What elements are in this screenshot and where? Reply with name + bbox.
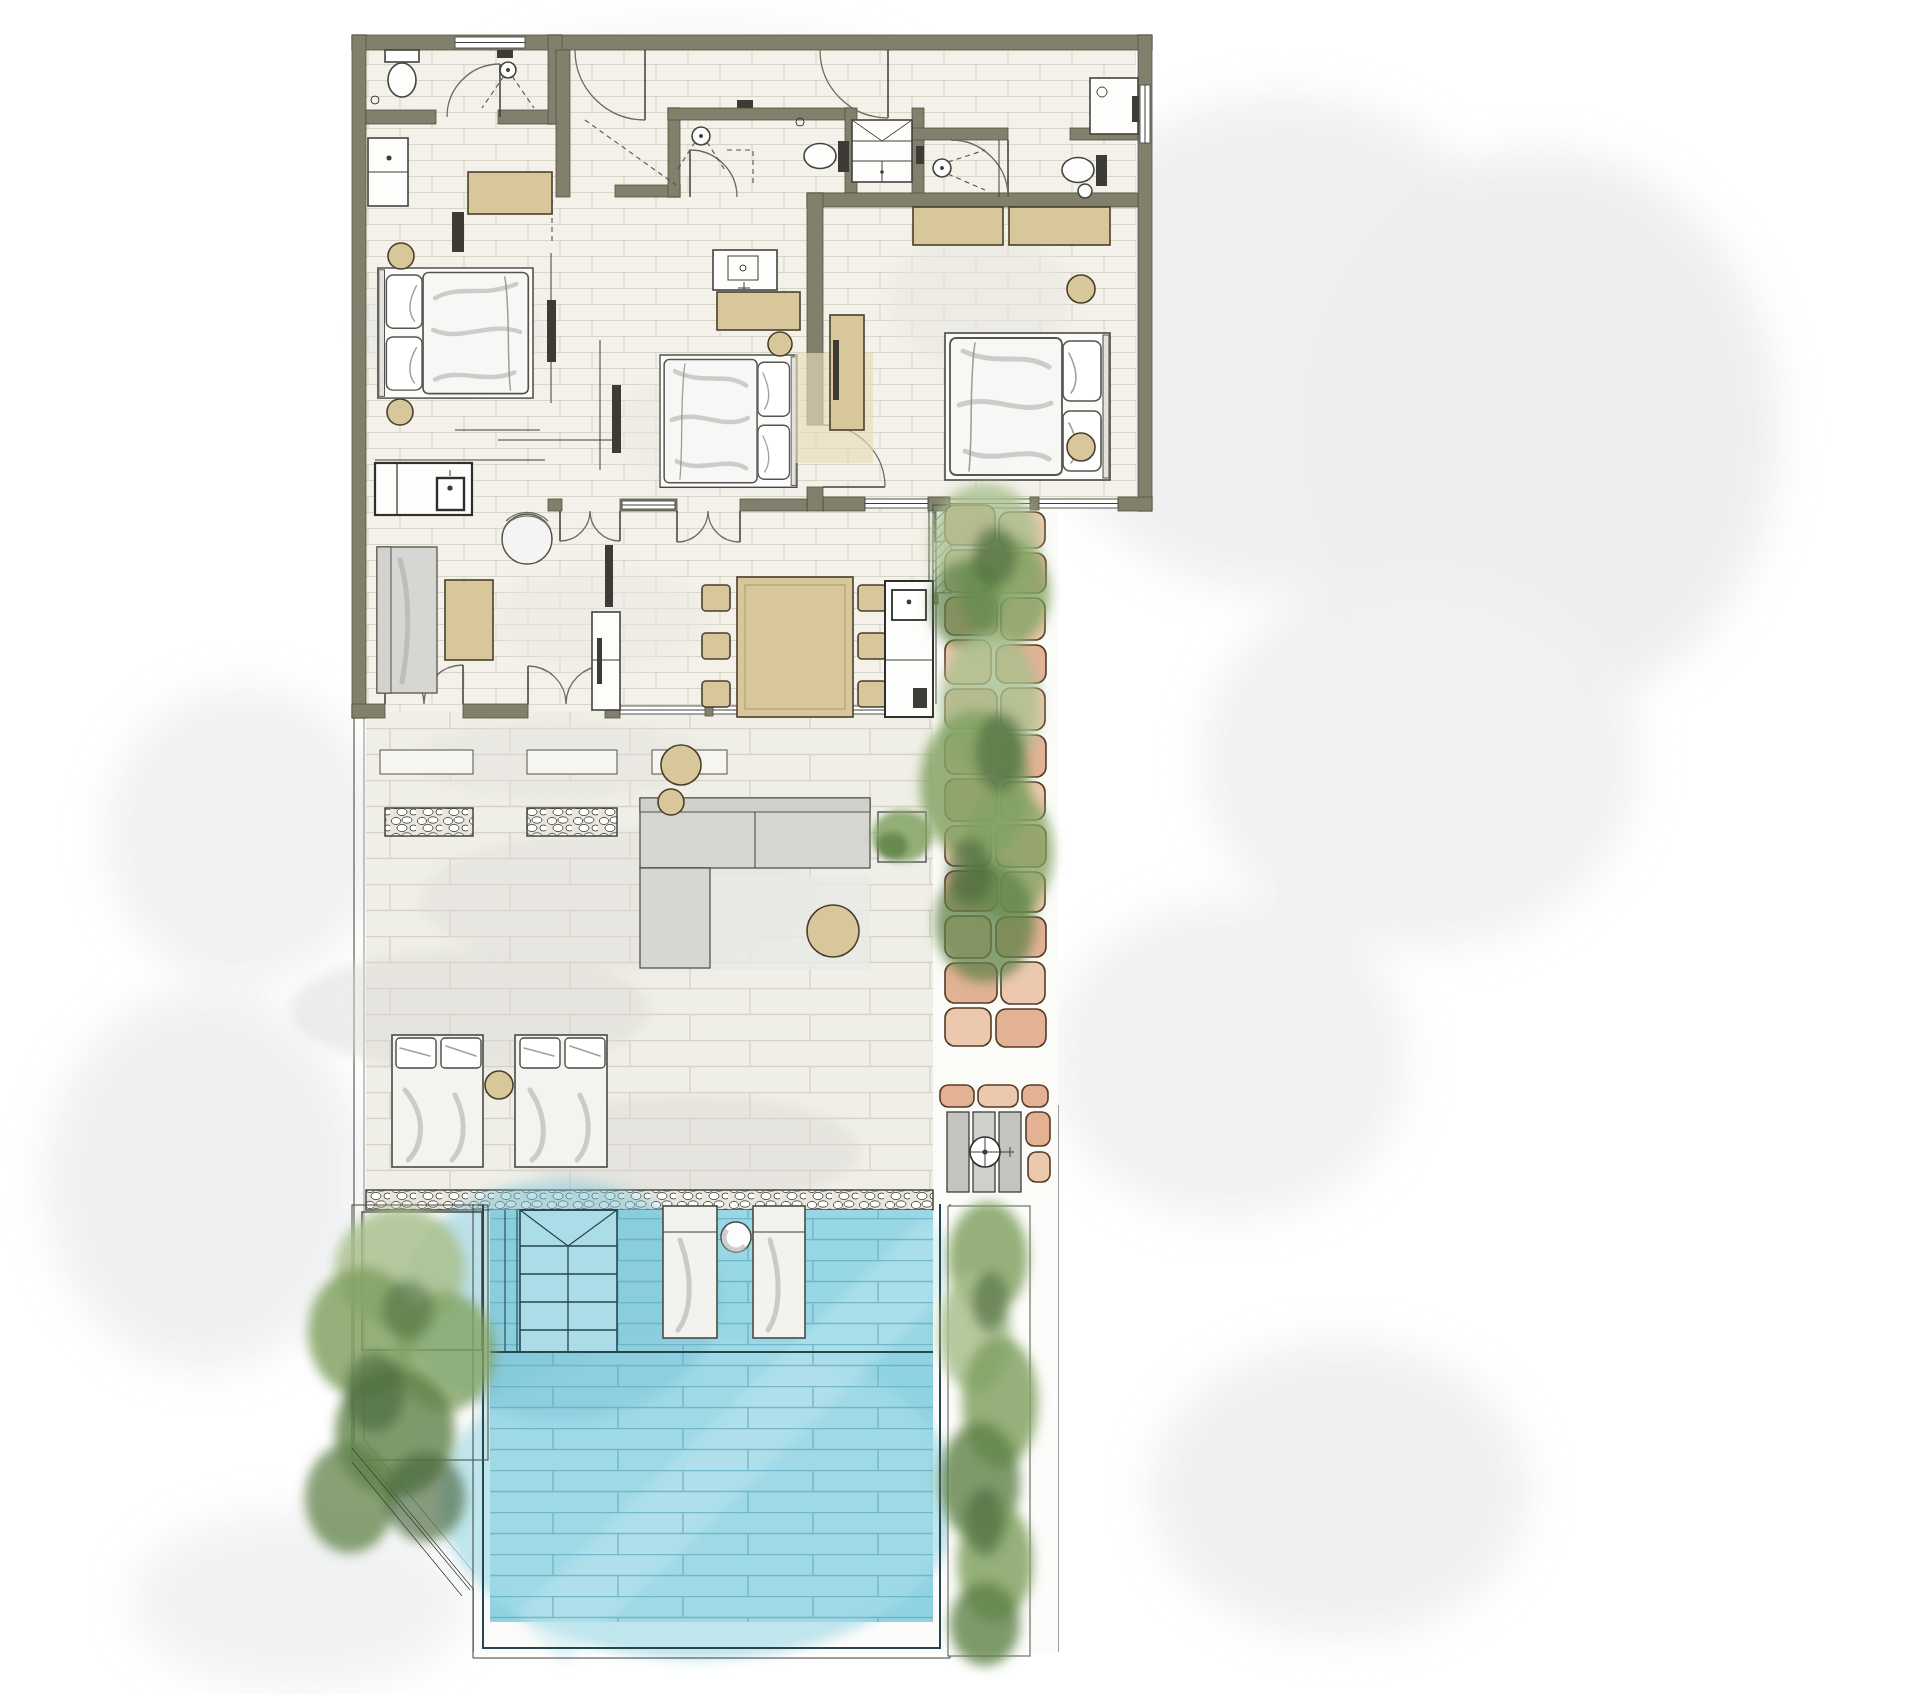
bedside-stool — [1067, 433, 1095, 461]
float-ball — [721, 1222, 751, 1252]
outdoor-shower — [947, 1112, 1021, 1192]
vanity-with-sink — [713, 250, 777, 290]
round-coffee-table — [807, 905, 859, 957]
bedside-stool — [1067, 275, 1095, 303]
coffee-table — [445, 580, 493, 660]
pool-steps — [520, 1210, 617, 1352]
double-bed — [378, 268, 533, 398]
wardrobe — [1009, 207, 1110, 245]
floor-plan-canvas — [0, 0, 1920, 1694]
pool-hedge-right — [939, 1202, 1038, 1666]
vanity — [368, 138, 408, 206]
tv-panel — [452, 212, 464, 252]
double-sun-lounger — [392, 1035, 483, 1167]
double-bed — [660, 355, 797, 487]
toilet-icon — [385, 50, 419, 97]
lounger-side-table — [485, 1071, 513, 1099]
in-pool-lounger — [753, 1206, 805, 1338]
floor-plan-page — [0, 0, 1920, 1694]
bedside-stool — [768, 332, 792, 356]
sink-icon — [437, 478, 464, 510]
linen-closet — [852, 120, 912, 182]
pool — [400, 1180, 960, 1660]
in-pool-lounger — [663, 1206, 717, 1338]
bedside-stool — [387, 399, 413, 425]
round-side-table — [658, 789, 684, 815]
round-side-table — [661, 745, 701, 785]
round-armchair — [502, 512, 552, 564]
tv-panel — [612, 385, 621, 453]
corner-vanity — [1090, 78, 1139, 134]
sink-icon — [892, 590, 926, 620]
bedroom-2-south-window — [622, 501, 675, 509]
wardrobe — [913, 207, 1003, 245]
hand-basin — [1078, 184, 1092, 198]
tv — [833, 340, 839, 400]
double-sun-lounger — [515, 1035, 607, 1167]
outdoor-kitchen-counter — [885, 581, 933, 717]
sofa — [377, 547, 437, 693]
right-wall-window — [1140, 85, 1150, 143]
bedside-stool — [388, 243, 414, 269]
wardrobe — [468, 172, 552, 214]
tv — [547, 300, 556, 362]
clerestory-window — [455, 37, 525, 48]
dining-table — [737, 577, 853, 717]
planter-box — [872, 810, 932, 862]
wardrobe-cabinet — [717, 292, 800, 330]
